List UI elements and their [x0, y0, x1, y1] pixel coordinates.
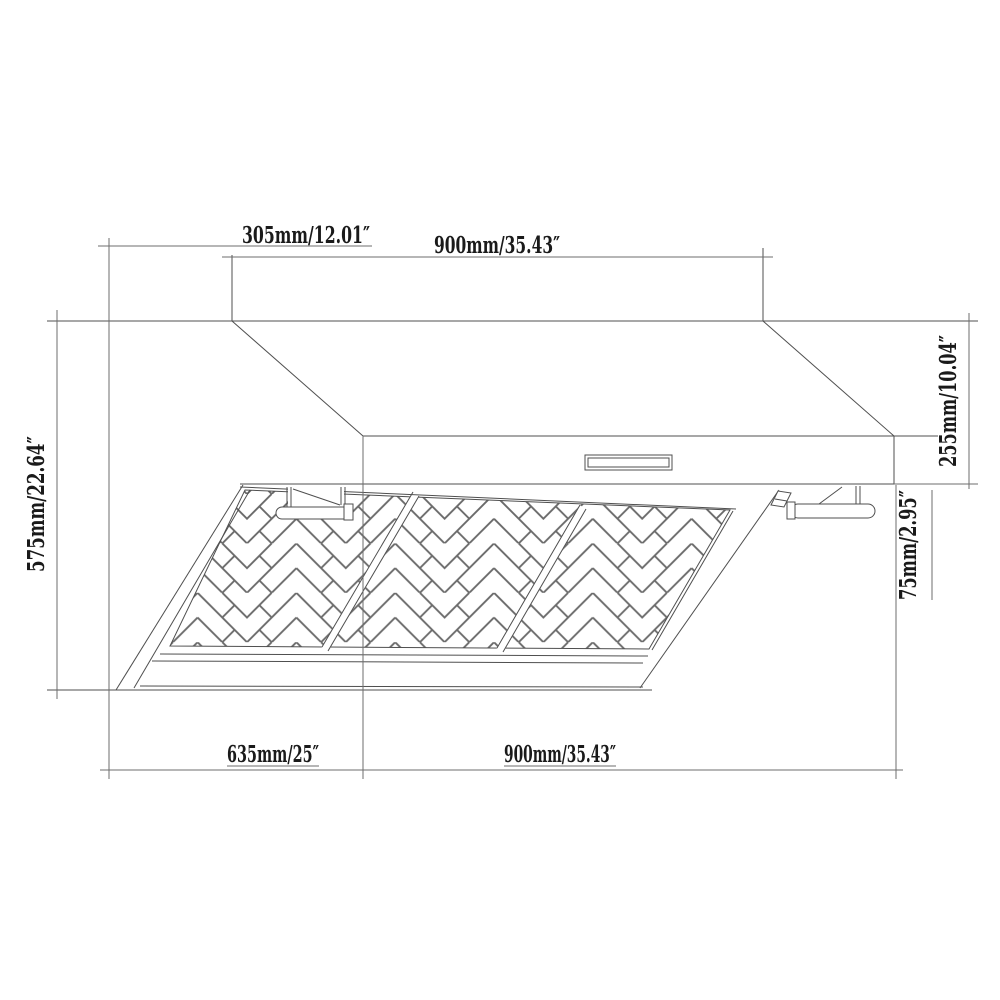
control-panel: [585, 455, 672, 470]
dim-label-filter-height: 75mm/2.95″: [895, 490, 922, 600]
baffle-filter-tray: [47, 485, 779, 690]
left-handle-cap: [344, 504, 353, 520]
canopy-right-slope: [763, 321, 894, 436]
dim-label-duct-offset: 305mm/12.01″: [242, 222, 370, 249]
range-hood-diagram: 305mm/12.01″ 900mm/35.43″ 255mm/10.04″ 5…: [0, 0, 1000, 1000]
dim-label-total-height: 575mm/22.64″: [23, 436, 50, 572]
dim-label-top-width: 900mm/35.43″: [434, 232, 560, 259]
right-handle-cap: [787, 502, 795, 519]
dimension-drawing: 305mm/12.01″ 900mm/35.43″ 255mm/10.04″ 5…: [0, 0, 1000, 1000]
right-handle: [771, 486, 875, 519]
dim-label-body-height: 255mm/10.04″: [935, 335, 962, 467]
dim-label-bottom-width: 900mm/35.43″: [504, 741, 616, 768]
canopy-left-slope: [232, 321, 363, 436]
baffle-filter-pattern: [170, 490, 730, 649]
hood-outline: [47, 248, 978, 484]
dim-label-depth: 635mm/25″: [227, 741, 319, 768]
right-handle-bar: [791, 504, 875, 518]
left-handle-bar: [276, 507, 350, 519]
